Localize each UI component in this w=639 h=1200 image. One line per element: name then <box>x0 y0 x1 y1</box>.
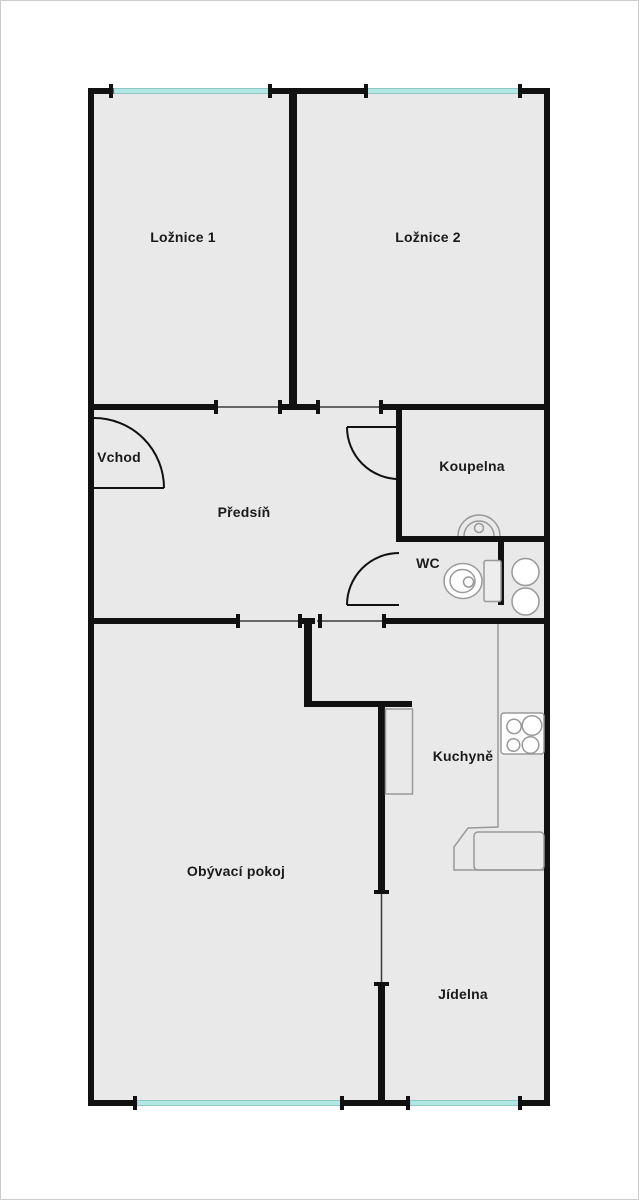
room-label-jidelna: Jídelna <box>438 986 488 1002</box>
floor-plan: Ložnice 1 Ložnice 2 Vchod Předsíň Koupel… <box>0 0 639 1200</box>
wall-living-dining <box>378 984 385 1100</box>
room-label-obyvaci-pokoj: Obývací pokoj <box>187 863 285 879</box>
window-jidelna <box>410 1101 520 1106</box>
wall-living-kitchen <box>378 707 385 894</box>
toilet-icon <box>444 561 501 602</box>
room-label-koupelna: Koupelna <box>439 458 504 474</box>
room-label-loznice-2: Ložnice 2 <box>395 229 461 245</box>
window-loznice-2 <box>366 89 520 94</box>
wall-koupelna-wc <box>396 536 544 542</box>
room-label-predsin: Předsíň <box>218 504 271 520</box>
wall-bedroom-divider <box>289 94 297 404</box>
room-label-kuchyne: Kuchyně <box>433 748 494 764</box>
room-label-loznice-1: Ložnice 1 <box>150 229 216 245</box>
window-obyvaci-pokoj <box>137 1101 341 1106</box>
stove-icon <box>501 713 544 754</box>
wall-kitchen-peninsula <box>304 701 412 707</box>
room-label-vchod: Vchod <box>97 449 141 465</box>
room-label-wc: WC <box>416 555 440 571</box>
wall-bathroom-left <box>396 410 402 536</box>
floor-plan-drawing <box>1 1 639 1200</box>
window-loznice-1 <box>114 89 270 94</box>
wall-kitchen-stub <box>304 624 312 707</box>
